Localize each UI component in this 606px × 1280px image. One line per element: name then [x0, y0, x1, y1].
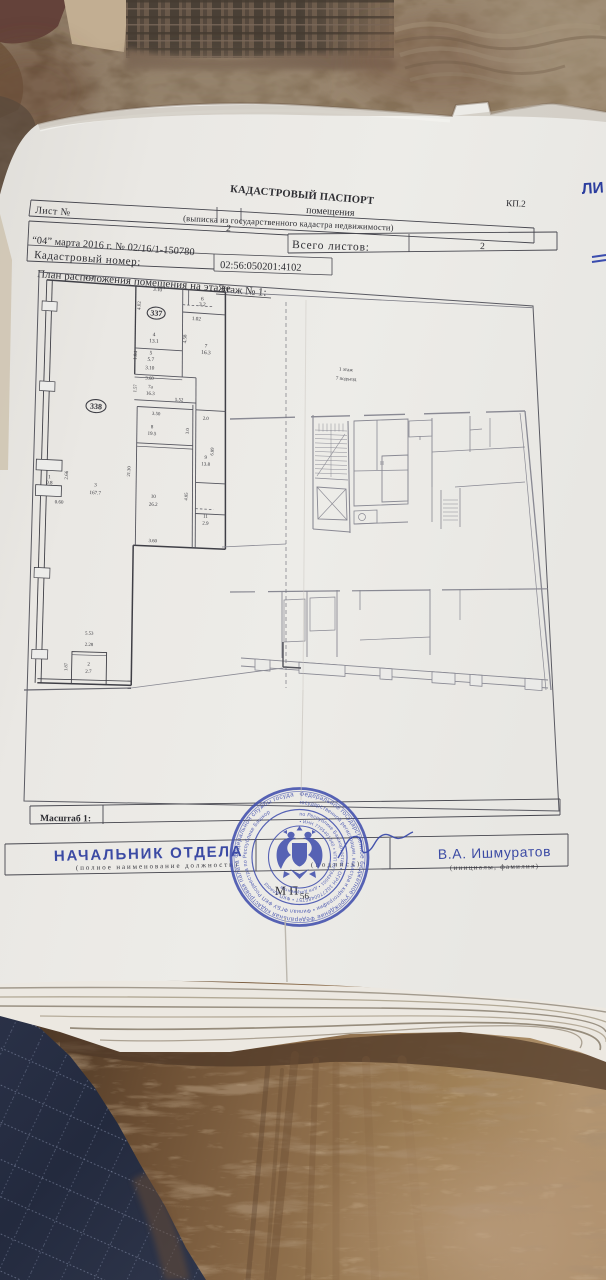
- svg-text:ЛИ: ЛИ: [581, 179, 604, 197]
- svg-text:3.50: 3.50: [152, 412, 161, 417]
- svg-text:0.8: 0.8: [46, 480, 53, 486]
- svg-text:11: 11: [203, 515, 209, 520]
- svg-text:4.05: 4.05: [183, 492, 188, 501]
- svg-text:16.3: 16.3: [201, 350, 211, 357]
- svg-text:13.8: 13.8: [201, 462, 210, 467]
- svg-text:19.5: 19.5: [147, 432, 156, 437]
- svg-text:2.9: 2.9: [202, 522, 209, 527]
- svg-text:13.1: 13.1: [149, 338, 159, 345]
- svg-text:3.60: 3.60: [145, 376, 154, 382]
- svg-text:5.53: 5.53: [85, 631, 94, 636]
- svg-text:3.2: 3.2: [199, 302, 206, 308]
- svg-text:0.60: 0.60: [55, 500, 64, 505]
- svg-text:4.58: 4.58: [183, 334, 188, 343]
- svg-text:1.57: 1.57: [132, 383, 137, 392]
- svg-text:В.А. Ишмуратов: В.А. Ишмуратов: [438, 844, 552, 862]
- svg-text:10: 10: [151, 495, 157, 500]
- svg-text:5.52: 5.52: [175, 398, 184, 403]
- svg-text:2.0: 2.0: [203, 417, 210, 422]
- svg-text:4.02: 4.02: [137, 301, 142, 310]
- svg-text:2.28: 2.28: [85, 643, 94, 648]
- svg-text:2.66: 2.66: [65, 470, 70, 479]
- svg-text:3.60: 3.60: [148, 539, 157, 544]
- svg-text:16.3: 16.3: [146, 392, 156, 398]
- svg-text:Масштаб 1:: Масштаб 1:: [40, 813, 91, 824]
- svg-text:167.7: 167.7: [89, 490, 101, 497]
- svg-text:1 этаж: 1 этаж: [339, 368, 354, 374]
- svg-text:338: 338: [90, 402, 102, 412]
- svg-text:2.7: 2.7: [85, 670, 92, 675]
- svg-text:3.10: 3.10: [153, 287, 163, 294]
- svg-text:8.68: 8.68: [85, 275, 95, 282]
- svg-text:3.0: 3.0: [185, 427, 190, 434]
- svg-text:2: 2: [226, 224, 232, 234]
- svg-text:21.30: 21.30: [126, 465, 132, 476]
- svg-text:КП.2: КП.2: [506, 198, 526, 209]
- svg-text:2: 2: [480, 242, 485, 252]
- svg-text:6.09: 6.09: [209, 447, 214, 456]
- svg-text:3.10: 3.10: [145, 365, 155, 372]
- svg-text:26.2: 26.2: [149, 503, 158, 508]
- svg-text:5.7: 5.7: [147, 357, 154, 363]
- svg-text:1.84: 1.84: [134, 350, 139, 359]
- svg-text:337: 337: [150, 308, 163, 318]
- svg-text:1.87: 1.87: [63, 662, 68, 671]
- svg-text:1.02: 1.02: [192, 316, 202, 323]
